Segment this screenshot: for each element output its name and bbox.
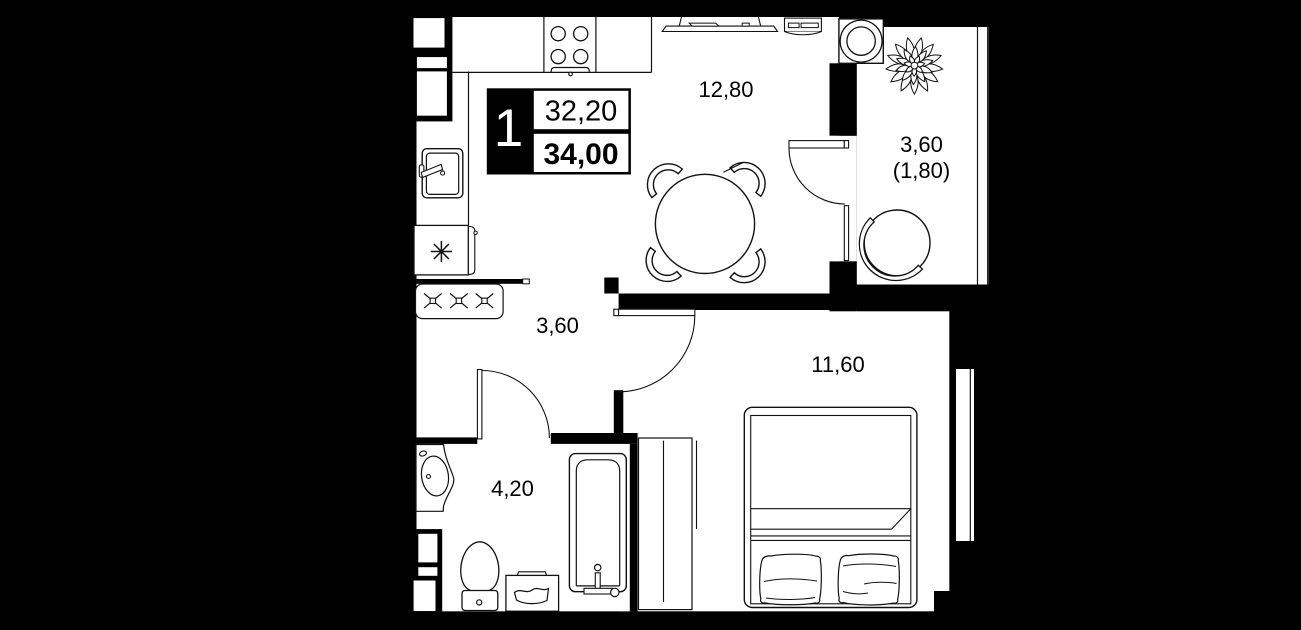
svg-text:11,60: 11,60	[811, 352, 864, 377]
svg-text:3,60: 3,60	[536, 313, 579, 338]
svg-text:3,60: 3,60	[900, 132, 943, 157]
svg-text:12,80: 12,80	[698, 77, 753, 102]
svg-text:32,20: 32,20	[545, 96, 618, 128]
svg-text:(1,80): (1,80)	[893, 158, 950, 183]
svg-text:4,20: 4,20	[491, 476, 534, 501]
svg-text:34,00: 34,00	[543, 138, 618, 171]
svg-text:1: 1	[494, 99, 523, 158]
